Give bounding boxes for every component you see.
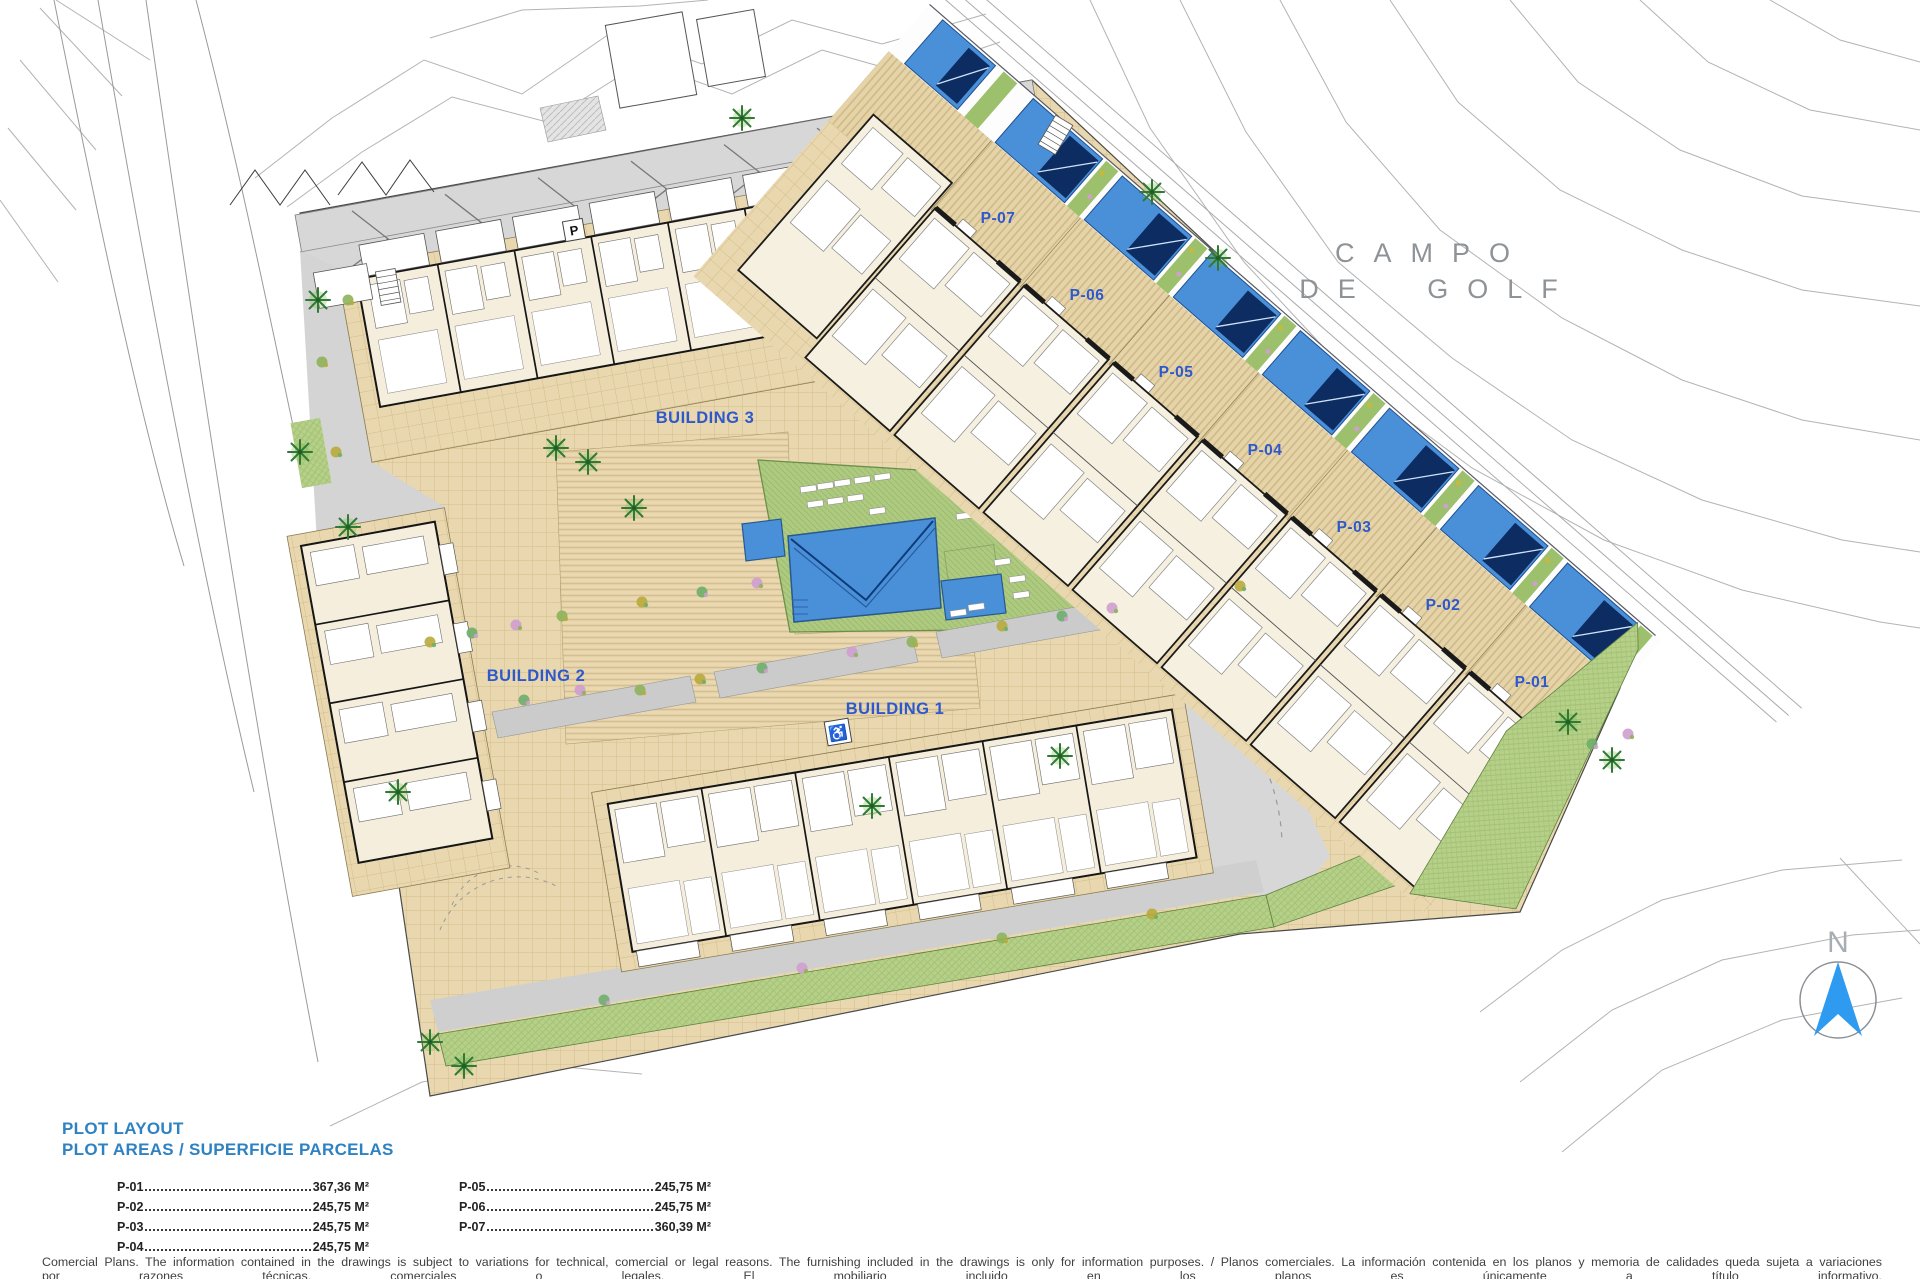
plot-id: P-04 — [117, 1240, 143, 1254]
plot-area-value: 360,39 M² — [655, 1220, 711, 1234]
site-plan-page: ♿ P BUILDING 3 BUILDING 2 BUILDING 1 P-0… — [0, 0, 1920, 1280]
leader-dots — [145, 1189, 310, 1191]
svg-text:♿: ♿ — [827, 723, 848, 744]
palm-tree-icon — [1556, 710, 1580, 734]
palm-tree-icon — [1048, 744, 1072, 768]
north-label: N — [1827, 926, 1849, 959]
plot-legend: PLOT LAYOUT PLOT AREAS / SUPERFICIE PARC… — [62, 1118, 762, 1254]
plot-label-p-04: P-04 — [1248, 442, 1283, 459]
leader-dots — [145, 1249, 310, 1251]
plot-area-value: 245,75 M² — [655, 1200, 711, 1214]
legend-subtitle: PLOT AREAS / SUPERFICIE PARCELAS — [62, 1139, 762, 1160]
plot-id: P-05 — [459, 1180, 485, 1194]
plot-label-p-05: P-05 — [1159, 364, 1194, 381]
palm-tree-icon — [860, 794, 884, 818]
palm-tree-icon — [576, 450, 600, 474]
palm-tree-icon — [336, 515, 360, 539]
palm-tree-icon — [1140, 180, 1164, 204]
building-1-label: BUILDING 1 — [846, 700, 945, 718]
accessible-parking-icon: ♿ — [824, 718, 852, 746]
plot-label-p-03: P-03 — [1337, 519, 1372, 536]
palm-tree-icon — [730, 106, 754, 130]
plot-id: P-07 — [459, 1220, 485, 1234]
palm-tree-icon — [386, 780, 410, 804]
legend-title: PLOT LAYOUT — [62, 1118, 762, 1139]
plot-area-value: 245,75 M² — [313, 1200, 369, 1214]
plot-area-row: P-01367,36 M² — [117, 1174, 369, 1194]
leader-dots — [145, 1209, 310, 1211]
building-2-label: BUILDING 2 — [487, 667, 586, 685]
plot-id: P-02 — [117, 1200, 143, 1214]
golf-course-label-line1: CAMPO — [1335, 238, 1529, 268]
plot-area-value: 245,75 M² — [313, 1220, 369, 1234]
kids-pool — [742, 519, 785, 561]
plot-area-row: P-07360,39 M² — [459, 1214, 711, 1234]
plot-areas-table: P-01367,36 M²P-02245,75 M²P-03245,75 M²P… — [117, 1174, 762, 1254]
plot-area-row: P-03245,75 M² — [117, 1214, 369, 1234]
plot-area-row: P-05245,75 M² — [459, 1174, 711, 1194]
plot-area-value: 367,36 M² — [313, 1180, 369, 1194]
leader-dots — [487, 1229, 652, 1231]
leader-dots — [145, 1229, 310, 1231]
palm-tree-icon — [622, 496, 646, 520]
palm-tree-icon — [1600, 748, 1624, 772]
plot-area-row: P-02245,75 M² — [117, 1194, 369, 1214]
plot-id: P-03 — [117, 1220, 143, 1234]
plot-id: P-01 — [117, 1180, 143, 1194]
plot-area-row: P-06245,75 M² — [459, 1194, 711, 1214]
north-arrow-glyph — [1814, 962, 1862, 1036]
disclaimer-text: Comercial Plans. The information contain… — [42, 1256, 1882, 1279]
plot-label-p-06: P-06 — [1070, 287, 1105, 304]
building-3-label: BUILDING 3 — [656, 409, 755, 427]
plot-label-p-07: P-07 — [981, 210, 1016, 227]
parking-sign-icon: P — [562, 218, 585, 241]
plot-areas-column: P-01367,36 M²P-02245,75 M²P-03245,75 M²P… — [117, 1174, 369, 1254]
plot-area-value: 245,75 M² — [313, 1240, 369, 1254]
leader-dots — [487, 1209, 652, 1211]
palm-tree-icon — [306, 288, 330, 312]
plot-label-p-01: P-01 — [1515, 674, 1550, 691]
leader-dots — [487, 1189, 652, 1191]
plot-area-value: 245,75 M² — [655, 1180, 711, 1194]
golf-course-label-line2: DE GOLF — [1299, 274, 1577, 304]
site-plan-drawing: ♿ P BUILDING 3 BUILDING 2 BUILDING 1 P-0… — [0, 0, 1920, 1280]
palm-tree-icon — [418, 1030, 442, 1054]
plot-areas-column: P-05245,75 M²P-06245,75 M²P-07360,39 M² — [459, 1174, 711, 1254]
palm-tree-icon — [288, 440, 312, 464]
plot-label-p-02: P-02 — [1426, 597, 1461, 614]
palm-tree-icon — [544, 436, 568, 460]
palm-tree-icon — [452, 1054, 476, 1078]
plot-id: P-06 — [459, 1200, 485, 1214]
plot-area-row: P-04245,75 M² — [117, 1234, 369, 1254]
palm-tree-icon — [1206, 246, 1230, 270]
